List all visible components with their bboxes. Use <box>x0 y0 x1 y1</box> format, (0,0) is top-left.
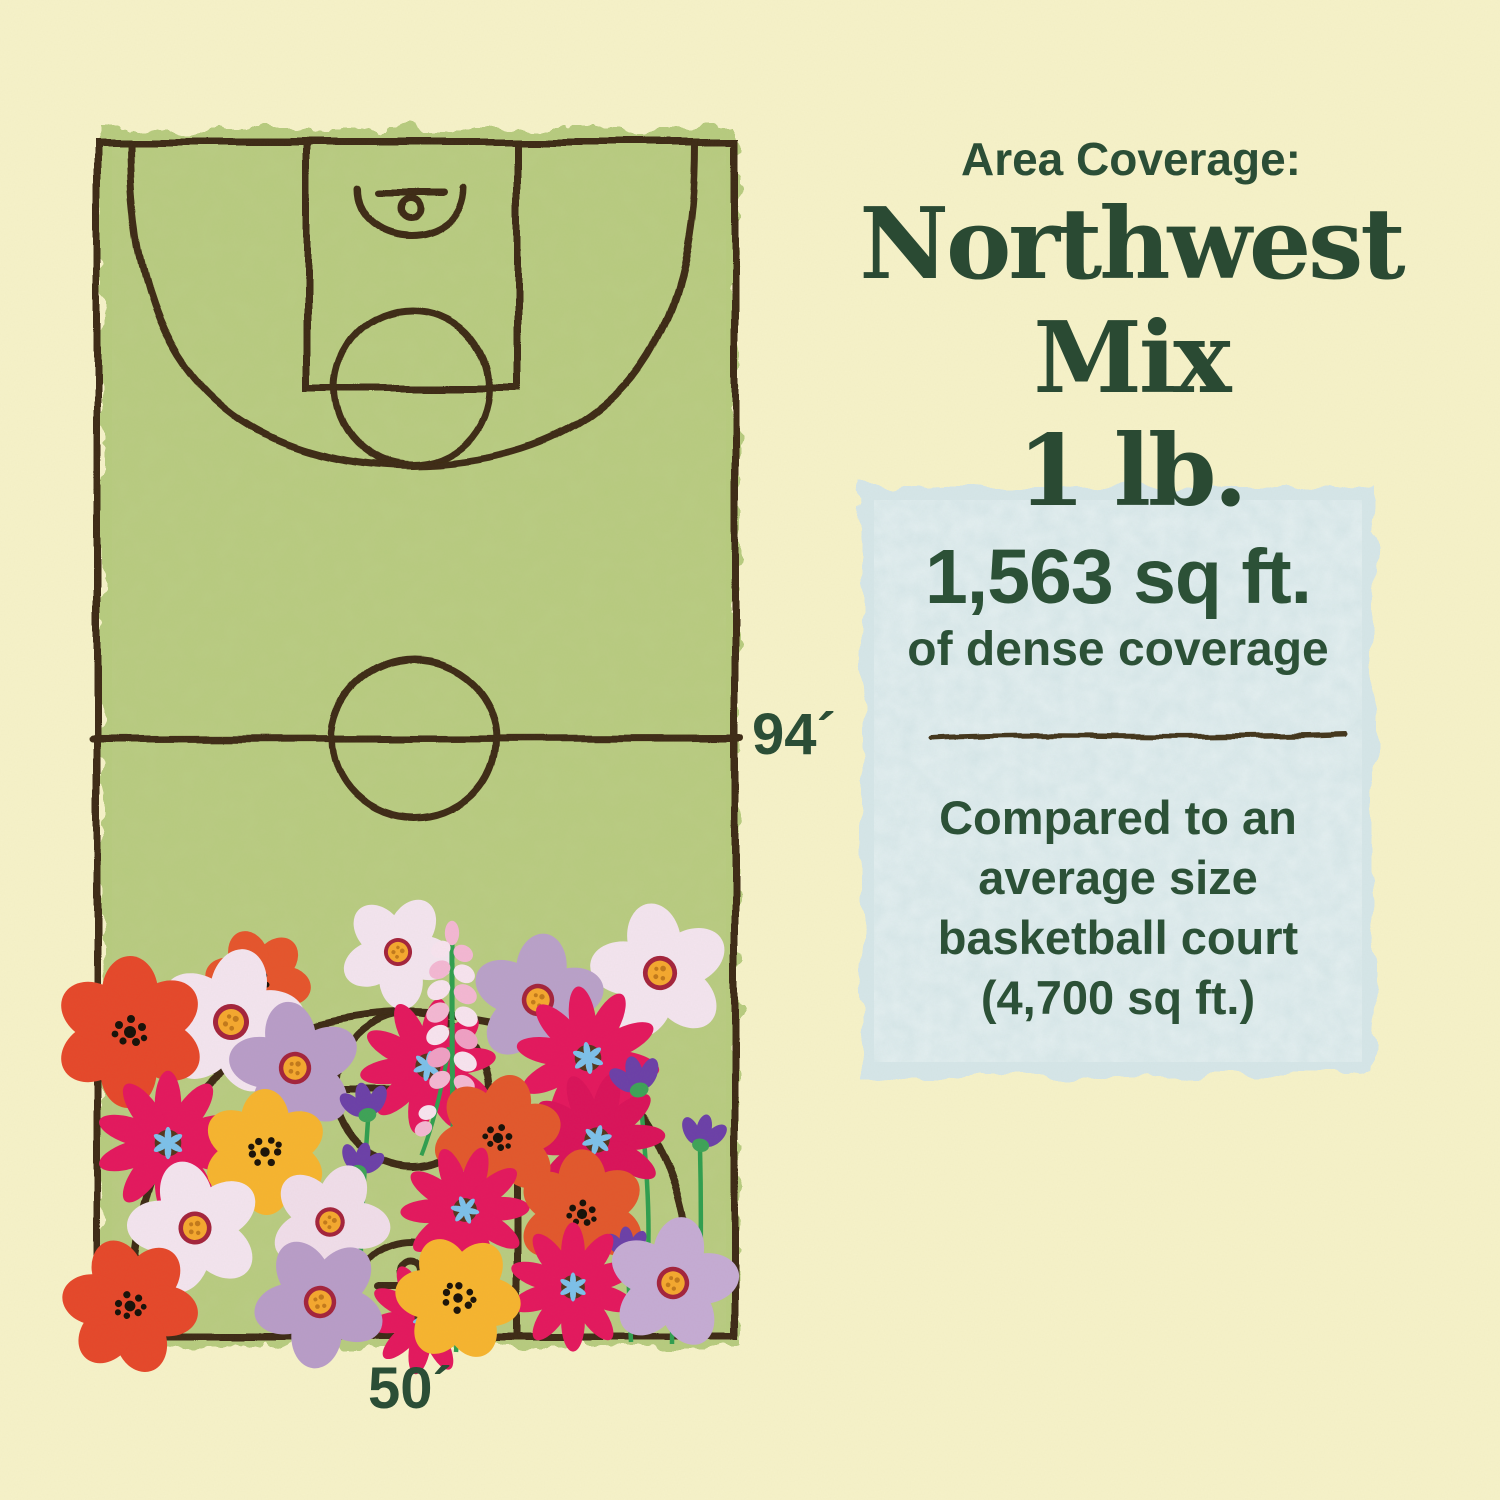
coverage-comparison: Compared to an average size basketball c… <box>856 788 1380 1028</box>
comparison-line: (4,700 sq ft.) <box>856 968 1380 1028</box>
comparison-line: basketball court <box>856 908 1380 968</box>
product-title: Northwest Mix 1 lb. <box>771 188 1491 529</box>
comparison-line: Compared to an <box>856 788 1380 848</box>
court-width-label: 50´ <box>368 1360 452 1418</box>
product-weight: 1 lb. <box>771 415 1491 529</box>
coverage-subtext: of dense coverage <box>856 626 1380 674</box>
court-length-label: 94´ <box>752 706 836 764</box>
area-coverage-heading: Area Coverage: <box>781 136 1481 182</box>
product-name: Northwest Mix <box>771 188 1491 415</box>
coverage-amount: 1,563 sq ft. <box>856 539 1380 616</box>
infographic-canvas: Area Coverage: Northwest Mix 1 lb. 94´ 5… <box>0 0 1500 1500</box>
comparison-line: average size <box>856 848 1380 908</box>
